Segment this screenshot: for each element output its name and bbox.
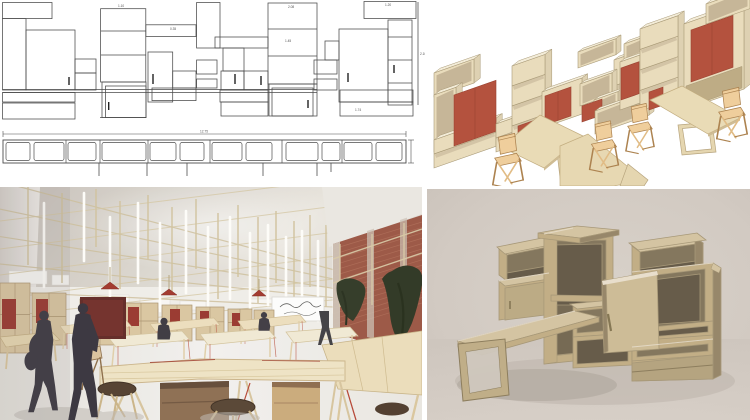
svg-text:0.35: 0.35 — [170, 27, 176, 31]
svg-text:1.10: 1.10 — [118, 4, 124, 8]
svg-text:1.20: 1.20 — [385, 3, 391, 7]
svg-text:12.75: 12.75 — [200, 130, 208, 134]
svg-text:2.10: 2.10 — [420, 52, 425, 56]
svg-text:2.08: 2.08 — [288, 5, 294, 9]
svg-text:1.74: 1.74 — [355, 108, 361, 112]
svg-text:1.45: 1.45 — [285, 39, 291, 43]
